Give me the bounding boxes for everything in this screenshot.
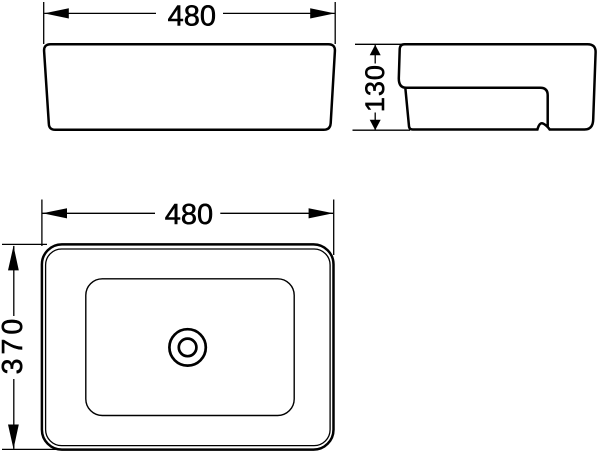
svg-text:130: 130 bbox=[360, 64, 390, 112]
svg-text:370: 370 bbox=[0, 315, 29, 375]
svg-text:480: 480 bbox=[168, 1, 216, 33]
svg-text:480: 480 bbox=[165, 199, 213, 231]
